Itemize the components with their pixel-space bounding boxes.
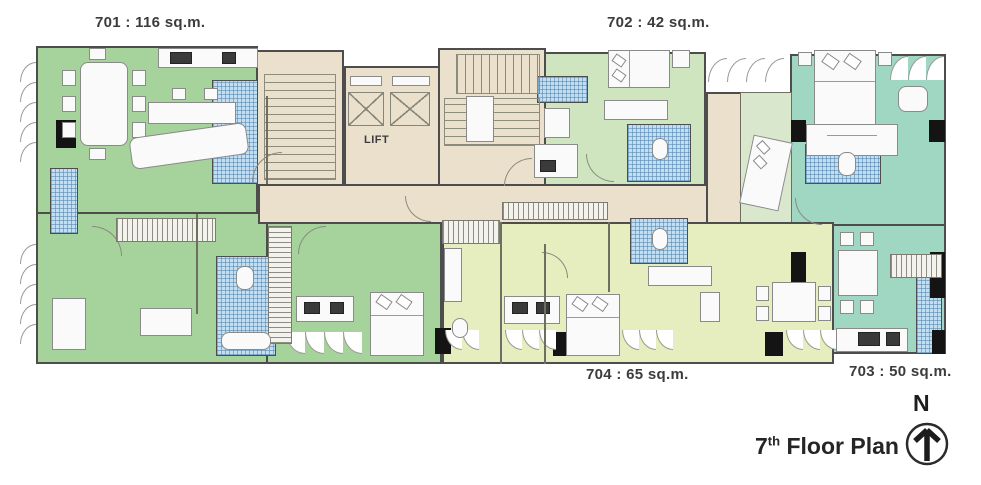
unit-701-area-label: 701 : 116 sq.m. (95, 14, 205, 31)
balcony-windows-left-upper (20, 62, 36, 162)
floor-plan-canvas: 701 : 116 sq.m. 702 : 42 sq.m. 703 : 50 … (0, 0, 981, 485)
chair (62, 96, 76, 112)
kitchen-sink-701 (170, 52, 192, 64)
compass-icon (904, 421, 950, 467)
sink (540, 160, 556, 172)
dining-table-701 (80, 62, 128, 146)
lift-vent-right (392, 76, 430, 86)
chair (132, 70, 146, 86)
cabinet-704 (700, 292, 720, 322)
interior-wall (196, 214, 198, 314)
wardrobe-704 (442, 220, 500, 244)
balcony-windows-704-right (622, 330, 673, 350)
title-ordinal: th (768, 433, 780, 448)
column (929, 120, 945, 142)
stool (172, 88, 186, 100)
stool (204, 88, 218, 100)
lift-vent-left (350, 76, 382, 86)
chair (62, 70, 76, 86)
chair (818, 286, 831, 301)
balcony-windows-702-right (708, 58, 784, 82)
nightstand (878, 52, 892, 66)
bar-counter-701 (148, 102, 236, 124)
unit-704-area-label: 704 : 65 sq.m. (586, 366, 689, 383)
wardrobe-701 (116, 218, 216, 242)
interior-wall (544, 244, 546, 364)
chair (860, 300, 874, 314)
table-702 (544, 108, 570, 138)
toilet-703 (838, 152, 856, 176)
balcony-windows-704-mid (505, 330, 556, 350)
bed-702 (608, 50, 670, 88)
chair (818, 306, 831, 321)
nightstand (798, 52, 812, 66)
stair-landing (466, 96, 494, 142)
interior-wall (266, 96, 268, 184)
north-label: N (913, 390, 930, 417)
chair (132, 96, 146, 112)
toilet-701 (236, 266, 254, 290)
interior-wall (608, 222, 610, 292)
core-hall-right (706, 92, 742, 226)
page-title: 7th Floor Plan (755, 433, 899, 460)
unit-702-wet-strip (537, 76, 588, 103)
sink (512, 302, 528, 314)
dresser-701-bedroom (140, 308, 192, 336)
closet-701-master (268, 226, 292, 344)
dining-table-703 (838, 250, 878, 296)
closet-703 (890, 254, 942, 278)
interior-wall (500, 222, 502, 364)
balcony-windows-703-bottom (786, 330, 837, 350)
chair (89, 48, 106, 60)
stove (886, 332, 900, 346)
column (765, 332, 783, 356)
toilet-704-guest (452, 318, 468, 338)
chair (89, 148, 106, 160)
unit-703-area-label: 703 : 50 sq.m. (849, 363, 952, 380)
chair (840, 300, 854, 314)
title-floor-number: 7 (755, 433, 768, 459)
staircase-right-upper (456, 54, 540, 94)
chair (62, 122, 76, 138)
unit-702-area-label: 702 : 42 sq.m. (607, 14, 710, 31)
dresser-703 (806, 124, 898, 156)
bed-701-master (370, 292, 424, 356)
dining-table-704 (772, 282, 816, 322)
counter-704-foyer (444, 248, 462, 302)
toilet-702 (652, 138, 668, 160)
stove (330, 302, 344, 314)
tv-console-702 (604, 100, 668, 120)
column (791, 120, 806, 142)
bed-704 (566, 294, 620, 356)
chair (840, 232, 854, 246)
toilet-704 (652, 228, 668, 250)
balcony-windows-701-bottom (286, 332, 362, 354)
armchair-703 (898, 86, 928, 112)
chair (860, 232, 874, 246)
bathtub-701 (221, 332, 271, 350)
title-text: Floor Plan (780, 433, 899, 459)
lift-label: LIFT (364, 134, 389, 146)
closet-704-corridor (502, 202, 608, 220)
stove-701 (222, 52, 236, 64)
dresser-704 (648, 266, 712, 286)
column (932, 330, 945, 354)
balcony-windows-703-top (890, 56, 944, 80)
balcony-windows-left-lower (20, 244, 36, 344)
stove (536, 302, 550, 314)
sink (858, 332, 880, 346)
chair (756, 306, 769, 321)
lift-car-left (348, 92, 384, 126)
sink (304, 302, 320, 314)
chair (756, 286, 769, 301)
desk-701-bedroom (52, 298, 86, 350)
shelf-702 (672, 50, 690, 68)
lift-car-right (390, 92, 430, 126)
unit-701-wet-strip (50, 168, 78, 234)
